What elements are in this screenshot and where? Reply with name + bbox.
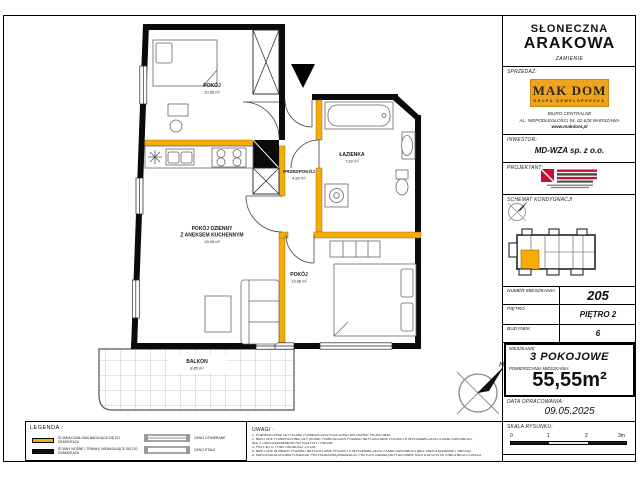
sprzedaz-section: SPRZEDAŻ: MAK DOM GRUPA DEWELOPERSKA BIU… [503,67,636,135]
budynek-label: BUDYNEK [503,325,560,342]
legend-box: LEGENDA : ŚCIANA DZIAŁOWA NADAJĄCA SIĘ D… [25,421,247,461]
pietro-label: PIĘTRO [503,305,560,324]
legend-item-partition: ŚCIANA DZIAŁOWA NADAJĄCA SIĘ DO DEMONTAŻ… [32,436,140,444]
legend-title: LEGENDA : [30,425,64,431]
room1-label: POKÓJ [203,81,221,89]
pietro-value: PIĘTRO 2 [560,305,636,324]
projektant-label: PROJEKTANT: [507,165,543,171]
balcony-label: BALKON [186,359,208,365]
numer-label: NUMER MIESZKANIA [503,287,560,304]
legend-window-openable: OKNO OTWIERANE [144,433,225,443]
entrance-marker-icon [291,64,315,88]
office-website: www.makdom.pl [503,124,636,129]
skala-label: SKALA RYSUNKU: [507,424,553,430]
project-name-line2: ARAKOWA [503,35,636,53]
apartment-area: 55,55m² [506,369,633,392]
project-title-section: SŁONECZNA ARAKOWA ZAMIENIE [503,15,636,67]
budynek-value: 6 [560,325,636,342]
schemat-label: SCHEMAT KONDYGNACJI [507,197,572,203]
bedroom-area: 13,36 m² [291,279,307,284]
bathroom-label: ŁAZIENKA [339,152,365,158]
bedroom-label: POKÓJ [290,270,308,278]
apartment-type: 3 POKOJOWE [506,351,633,363]
project-location: ZAMIENIE [503,56,636,62]
makdom-logo: MAK DOM GRUPA DEWELOPERSKA [530,79,609,107]
inwestor-value: MD-WZA sp. z o.o. [503,146,636,155]
black-wall-swatch [32,449,54,454]
makdom-logo-text: MAK DOM [531,83,608,99]
title-block: SŁONECZNA ARAKOWA ZAMIENIE SPRZEDAŻ: MAK… [502,15,636,462]
bathroom-area: 7,52 m² [345,159,359,164]
data-value: 09.05.2025 [503,406,636,417]
north-compass-icon: N [457,362,505,414]
scale-bar [510,441,627,445]
hall-label: PRZEDPOKÓJ [283,167,315,174]
hall-area: 4,82 m² [292,176,306,181]
notes-title: UWAGI : [252,427,498,433]
scale-ticks: 0 1 2 3m [510,433,628,439]
balcony-area: 8,85 m² [190,366,204,371]
yellow-wall-swatch [32,438,54,443]
office-address: AL. NIEPODLEGŁOŚCI 54, 02-626 WARSZAWA [503,118,636,123]
project-name-line1: SŁONECZNA [503,23,636,35]
living-label-2: Z ANEKSEM KUCHENNYM [180,233,243,239]
inwestor-label: INWESTOR: [507,137,537,143]
floor-plan-sheet: POKÓJ 10,36 m² ŁAZIENKA 7,52 m² PRZEDPOK… [0,0,640,480]
projektant-logo [541,168,599,195]
numer-value: 205 [560,287,636,304]
living-area: 19,49 m² [204,239,220,244]
notes-section: UWAGI : 1. POWIERZCHNIE UŻYTKOWE POMIESZ… [252,427,498,459]
row-pietro: PIĘTRO PIĘTRO 2 [503,305,636,325]
apartment-summary-box: MIESZKANIE: 3 POKOJOWE POWIERZCHNIA MIES… [504,343,635,397]
skala-section: SKALA RYSUNKU: 0 1 2 3m [503,422,636,455]
legend-item-bearing: ŚCIANY NOŚNE I TRWAŁE NIENADAJĄCE SIĘ DO… [32,447,140,455]
fixed-window-icon [144,445,190,455]
sprzedaz-label: SPRZEDAŻ: [507,69,537,75]
makdom-logo-tagline: GRUPA DEWELOPERSKA [531,99,608,103]
data-label: DATA OPRACOWANIA: [507,399,564,405]
notes-divider [247,421,502,422]
living-label-1: POKÓJ DZIENNY [192,224,234,232]
shafts [253,30,279,194]
office-label: BIURO CENTRALNE [503,111,636,116]
row-numer-mieszkania: NUMER MIESZKANIA 205 [503,287,636,305]
row-budynek: BUDYNEK 6 [503,325,636,343]
legend-window-fixed: OKNO STAŁE [144,445,215,455]
room1-area: 10,36 m² [204,90,220,95]
schemat-section: SCHEMAT KONDYGNACJI [503,195,636,287]
projektant-section: PROJEKTANT: [503,163,636,195]
data-section: DATA OPRACOWANIA: 09.05.2025 [503,397,636,422]
openable-window-icon [144,433,190,443]
inwestor-section: INWESTOR: MD-WZA sp. z o.o. [503,135,636,163]
